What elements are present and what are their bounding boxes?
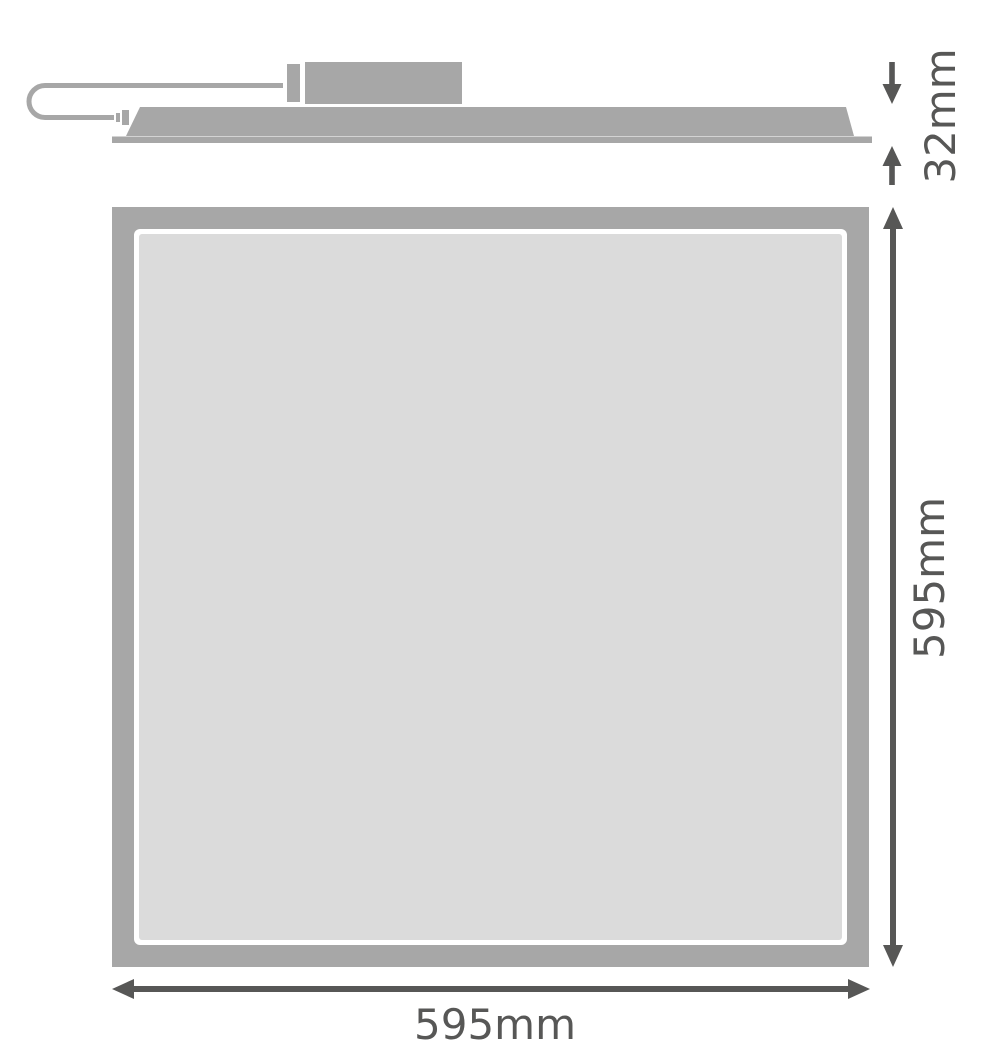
panel-front-frame bbox=[112, 207, 869, 967]
dimension-drawing: 32mm 595mm 595mm bbox=[0, 0, 1000, 1059]
profile-height-arrows bbox=[883, 62, 902, 185]
panel-width-label: 595mm bbox=[345, 1001, 645, 1049]
arrow-up-icon bbox=[883, 207, 903, 229]
arrow-down-tail bbox=[889, 62, 895, 86]
arrow-up-icon bbox=[883, 146, 902, 166]
panel-flange bbox=[112, 137, 872, 144]
panel-frame-gap bbox=[134, 229, 847, 945]
panel-profile bbox=[126, 107, 854, 136]
arrow-down-icon bbox=[883, 84, 902, 104]
driver-connector bbox=[287, 64, 300, 102]
panel-height-label: 595mm bbox=[906, 468, 954, 688]
panel-light-face bbox=[139, 234, 842, 940]
arrow-right-icon bbox=[848, 979, 870, 999]
arrow-left-icon bbox=[112, 979, 134, 999]
side-view bbox=[0, 0, 1000, 200]
driver-box bbox=[305, 62, 462, 104]
cable-plug-body bbox=[122, 110, 129, 125]
horizontal-dimension-line bbox=[132, 986, 848, 992]
arrow-up-tail bbox=[889, 164, 895, 185]
profile-height-label: 32mm bbox=[917, 36, 965, 196]
arrow-down-icon bbox=[883, 945, 903, 967]
vertical-dimension-line bbox=[890, 227, 896, 945]
cable-plug-tip bbox=[116, 113, 120, 122]
